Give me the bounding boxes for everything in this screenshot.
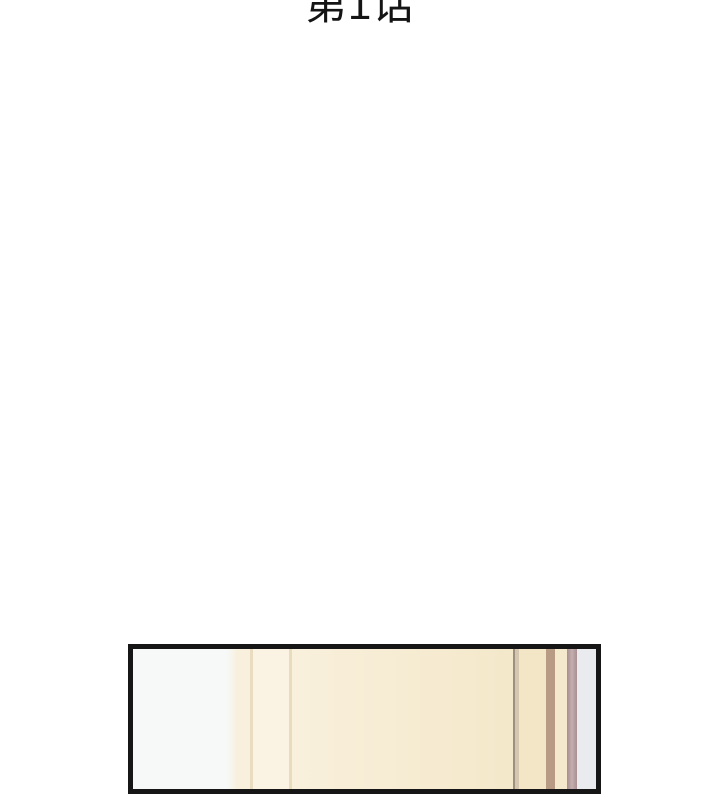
comic-panel — [128, 644, 601, 794]
cream-b-stripe — [253, 649, 289, 789]
cream-d-stripe — [555, 649, 567, 789]
panel-interior — [133, 649, 596, 789]
chapter-title: 第1话 — [0, 0, 720, 26]
cream-a-stripe — [237, 649, 250, 789]
door-main-stripe — [292, 649, 513, 789]
gray-edge-stripe — [577, 649, 596, 789]
cream-c-stripe — [519, 649, 546, 789]
mauve-trim-stripe — [567, 649, 577, 789]
tan-trim-stripe — [546, 649, 555, 789]
wall-transition-stripe — [227, 649, 237, 789]
white-wall-stripe — [133, 649, 227, 789]
